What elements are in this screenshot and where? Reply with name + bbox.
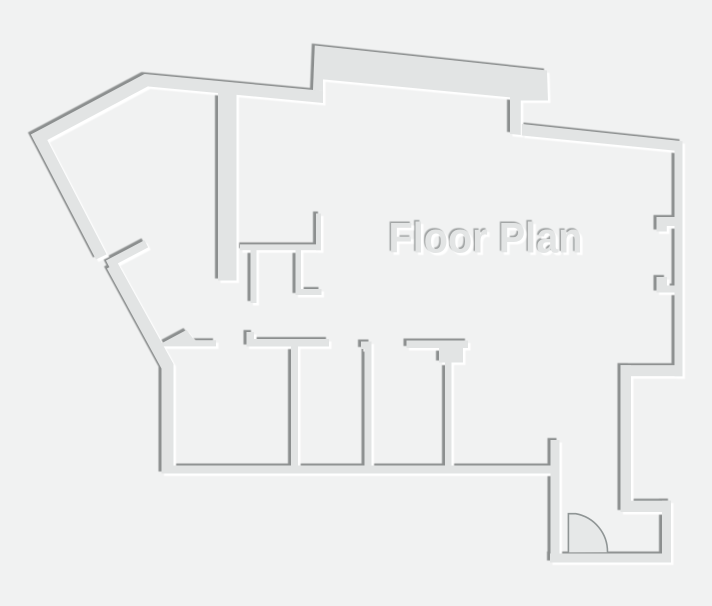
svg-text:Floor Plan: Floor Plan [389,216,583,263]
